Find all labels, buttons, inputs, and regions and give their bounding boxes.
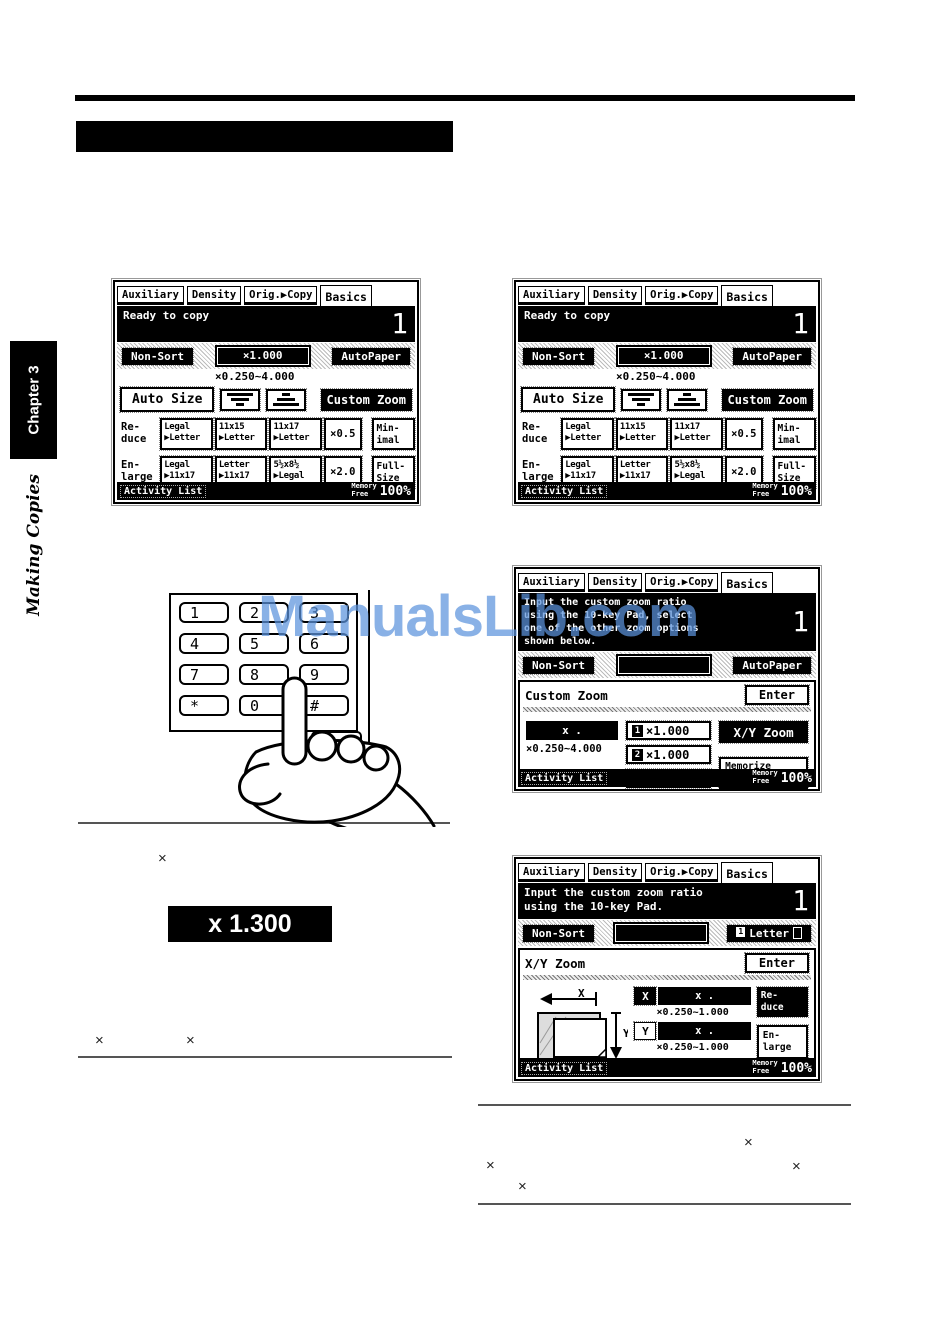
copier-screen-xy-zoom: Auxiliary Density Orig.▶Copy Basics Inpu… (514, 857, 820, 1081)
message-bar: Ready to copy 1 (518, 306, 816, 342)
tab-basics[interactable]: Basics (721, 285, 773, 306)
reduce-x05-button[interactable]: ×0.5 (725, 418, 762, 450)
auto-size-button[interactable]: Auto Size (120, 387, 214, 412)
xy-zoom-panel: X/Y Zoom Enter X Y (518, 948, 816, 1060)
right-rule-top (478, 1104, 851, 1106)
paper-tray-button[interactable]: 1 Letter (727, 925, 811, 942)
mode-row: Non-Sort ×1.000 AutoPaper (518, 343, 816, 369)
tab-density[interactable]: Density (588, 863, 642, 882)
times-sign: × (792, 1158, 801, 1175)
enlarge-button[interactable]: En- large (757, 1025, 808, 1059)
tray-number: 1 (736, 927, 745, 937)
panel-title: Custom Zoom (525, 688, 608, 703)
tab-auxiliary[interactable]: Auxiliary (117, 286, 184, 305)
xy-zoom-button[interactable]: X/Y Zoom (719, 721, 808, 743)
times-sign: × (486, 1157, 495, 1174)
triangle-up-icon (672, 391, 702, 408)
zoom-range-label: ×0.250~4.000 (215, 370, 417, 383)
auto-paper-button[interactable]: AutoPaper (332, 348, 410, 365)
y-value-display: x . (658, 1022, 750, 1040)
message-bar: Ready to copy 1 (117, 306, 415, 342)
times-sign: × (95, 1032, 104, 1049)
svg-text:X: X (578, 987, 585, 1000)
custom-zoom-range-label: ×0.250~4.000 (526, 743, 618, 755)
triangle-down-icon (225, 391, 255, 408)
zoom-up-button[interactable] (266, 389, 306, 411)
triangle-down-icon (626, 391, 656, 408)
status-message: Input the custom zoom ratio using the 10… (524, 886, 703, 913)
zoom-ratio-display: ×1.000 (618, 347, 710, 365)
activity-list-button[interactable]: Activity List (522, 486, 606, 497)
auto-paper-button[interactable]: AutoPaper (733, 657, 811, 674)
times-sign: × (158, 850, 167, 867)
left-rule-bottom (78, 1056, 452, 1058)
paper-size-label: Letter (749, 927, 789, 940)
status-bar: Activity List Memory Free 100% (518, 482, 816, 500)
reduce-button[interactable]: Re- duce (757, 987, 808, 1017)
y-axis-button[interactable]: Y (634, 1022, 656, 1040)
reduce-11x17-letter-button[interactable]: 11x17 ▶Letter (269, 418, 322, 450)
tab-orig-copy[interactable]: Orig.▶Copy (244, 286, 317, 305)
x-value-display: x . (658, 987, 750, 1005)
zoom-up-button[interactable] (667, 389, 707, 411)
copier-screen-basics-1: Auxiliary Density Orig.▶Copy Basics Read… (113, 280, 419, 504)
zoom-ratio-display: ×1.000 (217, 347, 309, 365)
right-rule-bottom (478, 1203, 851, 1205)
custom-zoom-panel: Custom Zoom Enter x . ×0.250~4.000 1 ×1.… (518, 680, 816, 781)
reduce-legal-letter-button[interactable]: Legal ▶Letter (561, 418, 614, 450)
copy-count: 1 (792, 608, 809, 636)
key-1[interactable]: 1 (179, 602, 229, 623)
enter-button[interactable]: Enter (745, 953, 809, 973)
reduce-legal-letter-button[interactable]: Legal ▶Letter (160, 418, 213, 450)
tab-bar: Auxiliary Density Orig.▶Copy Basics (115, 282, 417, 305)
svg-text:Y: Y (623, 1027, 628, 1040)
tab-density[interactable]: Density (588, 286, 642, 305)
times-sign: × (744, 1134, 753, 1151)
zoom-down-button[interactable] (220, 389, 260, 411)
paper-icon (793, 927, 802, 939)
enlarge-label: En- large (121, 460, 158, 483)
auto-size-button[interactable]: Auto Size (521, 387, 615, 412)
memory-free-value: 100% (781, 771, 812, 786)
reduce-11x15-letter-button[interactable]: 11x15 ▶Letter (616, 418, 669, 450)
tab-density[interactable]: Density (187, 286, 241, 305)
zoom-ratio-result-display: x 1.300 (168, 906, 332, 942)
x-range-label: ×0.250~1.000 (656, 1007, 750, 1018)
xy-zoom-diagram: X Y (526, 987, 628, 1067)
triangle-up-icon (271, 391, 301, 408)
copy-count: 1 (792, 887, 809, 915)
copy-count: 1 (391, 310, 408, 338)
tab-auxiliary[interactable]: Auxiliary (518, 863, 585, 882)
memory-free-label: Memory Free (351, 483, 376, 498)
zoom-ratio-result-value: x 1.300 (208, 910, 291, 939)
times-sign: × (186, 1032, 195, 1049)
reduce-11x17-letter-button[interactable]: 11x17 ▶Letter (670, 418, 723, 450)
mode-row: Non-Sort AutoPaper (518, 652, 816, 678)
manual-page: Chapter 3 Making Copies ManualsLib.com A… (0, 0, 950, 1342)
activity-list-button[interactable]: Activity List (522, 1063, 606, 1074)
manualslib-watermark: ManualsLib.com (258, 583, 698, 650)
tab-orig-copy[interactable]: Orig.▶Copy (645, 286, 718, 305)
minimal-button[interactable]: Min- imal (773, 418, 816, 450)
message-bar: Input the custom zoom ratio using the 10… (518, 883, 816, 919)
memory-free-label: Memory Free (752, 483, 777, 498)
preset-2-number: 2 (632, 749, 643, 761)
divider (523, 707, 811, 712)
status-message: Ready to copy (524, 309, 610, 322)
tab-basics[interactable]: Basics (320, 285, 372, 306)
tab-bar: Auxiliary Density Orig.▶Copy Basics (516, 282, 818, 305)
copy-count: 1 (792, 310, 809, 338)
status-bar: Activity List Memory Free 100% (117, 482, 415, 500)
enter-button[interactable]: Enter (745, 685, 809, 705)
preset-2-button[interactable]: 2 ×1.000 (626, 745, 711, 764)
preset-1-button[interactable]: 1 ×1.000 (626, 721, 711, 740)
zoom-ratio-display (615, 924, 707, 942)
activity-list-button[interactable]: Activity List (522, 773, 606, 784)
reduce-11x15-letter-button[interactable]: 11x15 ▶Letter (215, 418, 268, 450)
panel-title: X/Y Zoom (525, 956, 585, 971)
memory-free-value: 100% (380, 484, 411, 499)
status-message: Ready to copy (123, 309, 209, 322)
non-sort-button[interactable]: Non-Sort (523, 925, 594, 942)
tab-bar: Auxiliary Density Orig.▶Copy Basics (516, 859, 818, 882)
non-sort-button[interactable]: Non-Sort (122, 348, 193, 365)
mode-row: Non-Sort 1 Letter (518, 920, 816, 946)
zoom-ratio-display (618, 656, 710, 674)
x-axis-button[interactable]: X (634, 987, 656, 1005)
tab-basics[interactable]: Basics (721, 862, 773, 883)
memory-free-value: 100% (781, 484, 812, 499)
status-bar: Activity List Memory Free 100% (518, 769, 816, 787)
top-rule (75, 95, 855, 101)
preset-1-value: ×1.000 (646, 724, 689, 738)
divider (523, 975, 811, 980)
enlarge-label: En- large (522, 460, 559, 483)
preset-2-value: ×1.000 (646, 748, 689, 762)
reduce-x05-button[interactable]: ×0.5 (324, 418, 361, 450)
chapter-label: Chapter 3 (25, 365, 42, 434)
zoom-range-label: ×0.250~4.000 (616, 370, 818, 383)
page-title-bar (76, 121, 453, 152)
activity-list-button[interactable]: Activity List (121, 486, 205, 497)
chapter-tab: Chapter 3 (10, 341, 57, 459)
tab-auxiliary[interactable]: Auxiliary (518, 286, 585, 305)
zoom-down-button[interactable] (621, 389, 661, 411)
custom-zoom-value-display: x . (526, 721, 618, 740)
custom-zoom-button[interactable]: Custom Zoom (321, 389, 412, 411)
minimal-button[interactable]: Min- imal (372, 418, 415, 450)
mode-row: Non-Sort ×1.000 AutoPaper (117, 343, 415, 369)
pointing-hand-illustration (190, 632, 450, 827)
non-sort-button[interactable]: Non-Sort (523, 348, 594, 365)
preset-1-number: 1 (632, 725, 643, 737)
custom-zoom-button[interactable]: Custom Zoom (722, 389, 813, 411)
y-range-label: ×0.250~1.000 (656, 1042, 750, 1053)
tab-basics[interactable]: Basics (721, 572, 773, 593)
auto-paper-button[interactable]: AutoPaper (733, 348, 811, 365)
section-label: Making Copies (24, 474, 44, 616)
reduce-label: Re- duce (522, 422, 559, 445)
reduce-label: Re- duce (121, 422, 158, 445)
non-sort-button[interactable]: Non-Sort (523, 657, 594, 674)
tab-orig-copy[interactable]: Orig.▶Copy (645, 863, 718, 882)
memory-free-label: Memory Free (752, 770, 777, 785)
status-bar: Activity List Memory Free 100% (518, 1059, 816, 1077)
section-tab: Making Copies (10, 462, 57, 627)
copier-screen-basics-2: Auxiliary Density Orig.▶Copy Basics Read… (514, 280, 820, 504)
times-sign: × (518, 1178, 527, 1195)
memory-free-value: 100% (781, 1061, 812, 1076)
memory-free-label: Memory Free (752, 1060, 777, 1075)
